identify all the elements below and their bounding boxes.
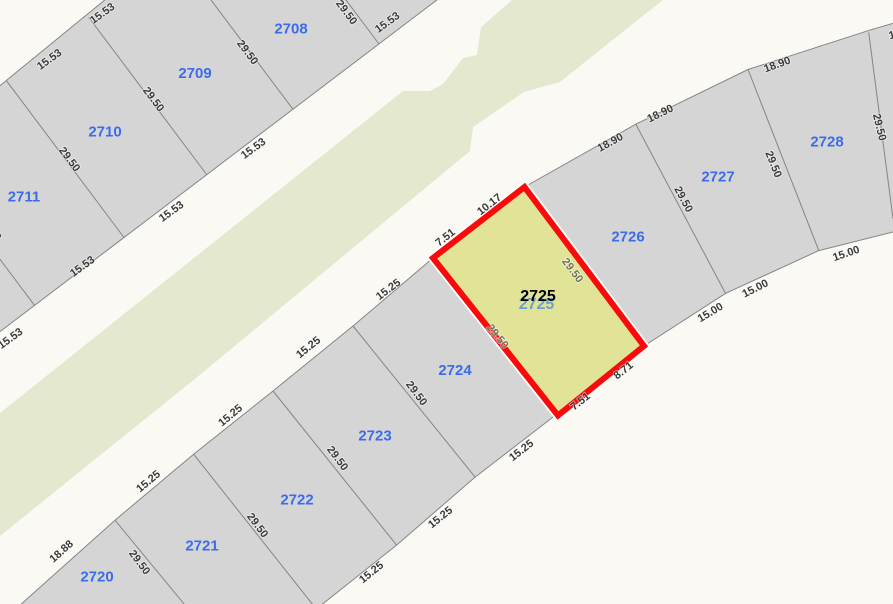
svg-text:2727: 2727 <box>701 168 734 185</box>
svg-text:2724: 2724 <box>438 362 472 379</box>
svg-text:2709: 2709 <box>178 65 211 82</box>
svg-text:2708: 2708 <box>274 20 307 37</box>
svg-text:2723: 2723 <box>358 427 391 444</box>
svg-text:2711: 2711 <box>8 188 41 205</box>
svg-text:2725: 2725 <box>520 288 556 305</box>
svg-text:2722: 2722 <box>280 491 313 508</box>
svg-text:2710: 2710 <box>88 123 121 140</box>
svg-text:2721: 2721 <box>185 537 218 554</box>
svg-text:2720: 2720 <box>80 568 113 585</box>
svg-text:2726: 2726 <box>611 228 644 245</box>
svg-text:2728: 2728 <box>810 133 843 150</box>
